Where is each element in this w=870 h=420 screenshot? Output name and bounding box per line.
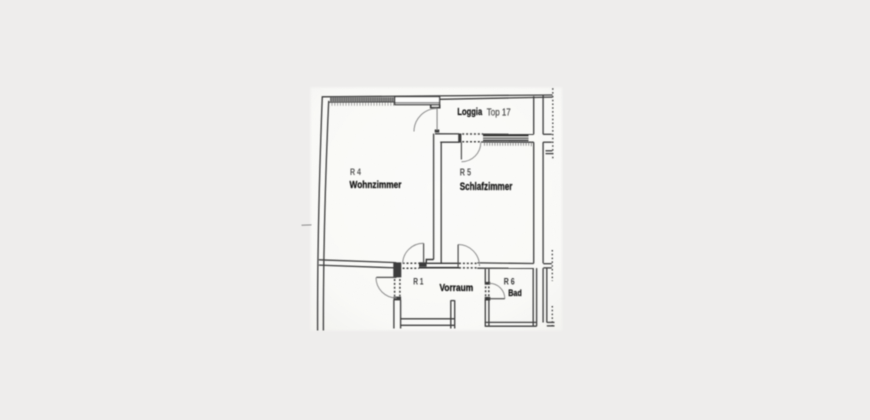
svg-text:Wohnzimmer: Wohnzimmer [350, 180, 402, 191]
svg-text:Loggia: Loggia [457, 107, 482, 118]
svg-text:R 1: R 1 [413, 277, 423, 287]
svg-text:Schlafzimmer: Schlafzimmer [460, 181, 513, 193]
svg-text:R 4: R 4 [350, 167, 361, 177]
svg-text:R 5: R 5 [460, 168, 472, 179]
svg-text:R 6: R 6 [504, 276, 515, 286]
svg-text:Top 17: Top 17 [487, 107, 511, 118]
svg-text:Bad: Bad [508, 288, 522, 298]
svg-text:Vorraum: Vorraum [440, 283, 474, 294]
